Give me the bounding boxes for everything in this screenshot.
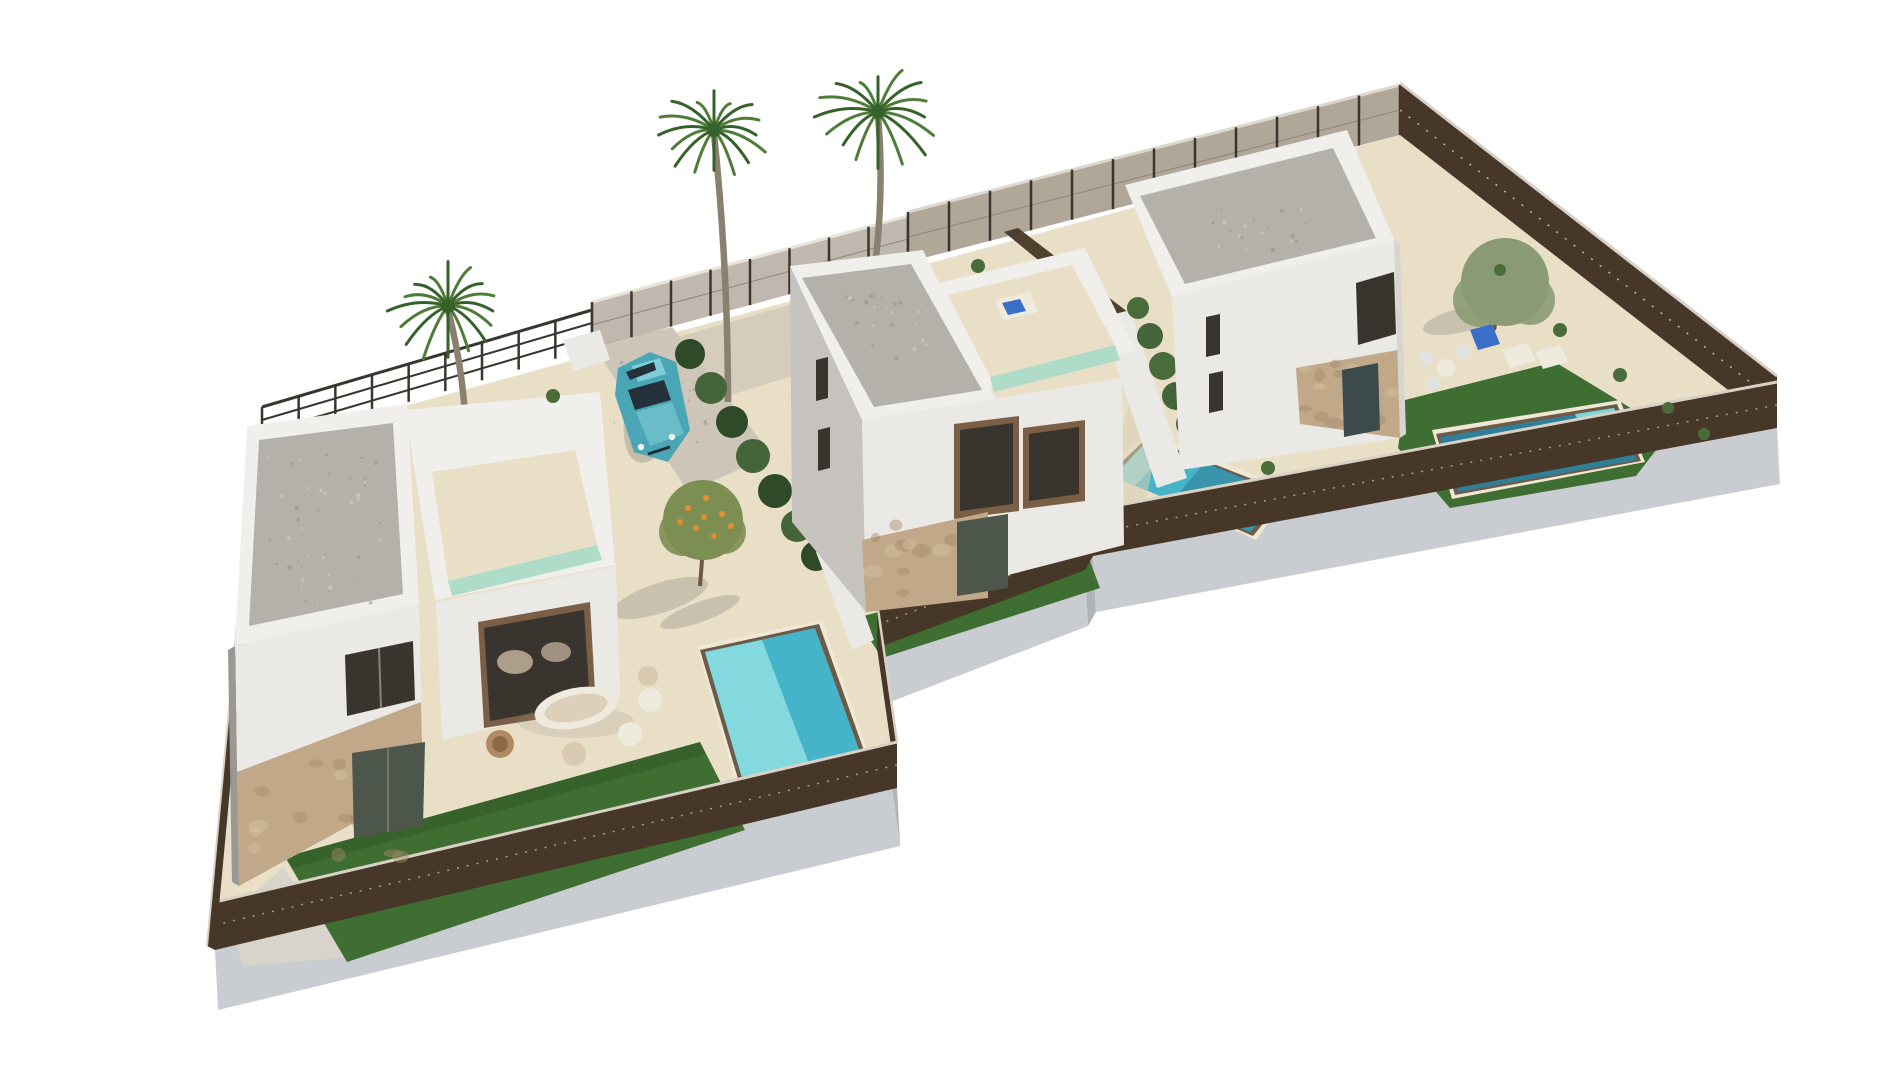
garden-chair-3	[1426, 377, 1440, 391]
villa2-garden-door	[957, 514, 1008, 596]
villa3-upper-window	[1356, 272, 1396, 345]
villa1-window-curtain2	[541, 642, 571, 662]
villa2-window-left-glass	[960, 423, 1013, 511]
car-headlight-right	[669, 434, 675, 440]
garden-table	[1437, 359, 1455, 377]
villa2-slit-window2	[818, 427, 830, 471]
villa3-slit-window1	[1206, 314, 1220, 357]
car-headlight-left	[638, 444, 644, 450]
villa1-main-roof-gravel	[249, 423, 403, 626]
pouf-white-1	[638, 688, 662, 712]
render-canvas	[0, 0, 1900, 1069]
side-table	[562, 742, 586, 766]
garden-chair-2	[1456, 345, 1470, 359]
villa3-garden-door	[1342, 363, 1380, 437]
garden-chair-1	[1419, 351, 1433, 365]
villa3-slit-window2	[1209, 371, 1223, 413]
villa2-window-right-glass	[1029, 427, 1079, 501]
pouf-white-2	[618, 722, 642, 746]
villa1-window-curtain	[497, 650, 533, 674]
architectural-render	[0, 0, 1900, 1069]
pouf-brown-inner	[492, 736, 508, 752]
pot-beige	[638, 666, 658, 686]
villa2-slit-window1	[816, 357, 828, 401]
